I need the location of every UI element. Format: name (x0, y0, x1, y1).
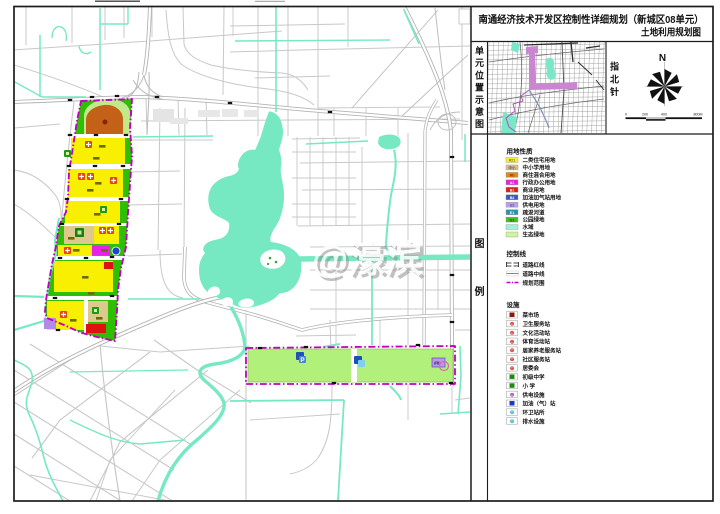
svg-text:设施: 设施 (507, 300, 521, 309)
svg-text:B1: B1 (510, 189, 515, 193)
svg-text:⊕: ⊕ (510, 366, 515, 372)
svg-text:400: 400 (661, 113, 667, 117)
svg-text:加油（气）站: 加油（气）站 (522, 400, 557, 408)
svg-text:商业用地: 商业用地 (523, 186, 546, 194)
svg-text:行政办公用地: 行政办公用地 (522, 178, 557, 186)
svg-text:生态绿地: 生态绿地 (523, 231, 546, 239)
svg-text:针: 针 (610, 86, 619, 97)
svg-text:A1: A1 (510, 181, 515, 185)
svg-text:图: 图 (475, 119, 484, 129)
svg-text:位: 位 (475, 69, 484, 80)
svg-text:单: 单 (475, 45, 484, 56)
svg-text:U1: U1 (510, 203, 515, 207)
svg-text:##: ## (434, 361, 440, 367)
svg-text:图: 图 (475, 238, 485, 250)
svg-text:指: 指 (610, 61, 619, 72)
svg-text:E1: E1 (510, 211, 514, 215)
svg-text:商住混合用地: 商住混合用地 (523, 171, 557, 179)
svg-text:⊕: ⊕ (510, 348, 515, 354)
svg-text:Rb: Rb (510, 174, 516, 178)
svg-text:道路红线: 道路红线 (523, 261, 546, 269)
svg-text:小 学: 小 学 (523, 382, 536, 390)
svg-text:例: 例 (475, 285, 485, 298)
svg-text:⊕: ⊕ (510, 322, 515, 328)
svg-text:⊕: ⊕ (510, 357, 515, 363)
svg-text:供电设施: 供电设施 (522, 391, 546, 399)
svg-text:⊕: ⊕ (510, 419, 515, 425)
svg-text:示: 示 (475, 95, 484, 105)
svg-text:菜市场: 菜市场 (522, 311, 540, 319)
svg-text:居委会: 居委会 (523, 364, 540, 372)
svg-text:R21: R21 (509, 159, 516, 163)
svg-text:卫生服务站: 卫生服务站 (523, 320, 551, 328)
svg-text:P: P (301, 358, 305, 364)
svg-text:排水设施: 排水设施 (523, 417, 546, 425)
svg-text:N: N (659, 53, 666, 64)
svg-text:初级中学: 初级中学 (523, 373, 546, 381)
svg-text:中小: 中小 (508, 165, 516, 170)
svg-text:⊕: ⊕ (510, 331, 515, 337)
svg-text:社区服务站: 社区服务站 (522, 355, 551, 363)
svg-text:⊕: ⊕ (510, 410, 515, 416)
svg-text:0: 0 (625, 113, 627, 117)
svg-text:中小学用地: 中小学用地 (523, 164, 551, 172)
svg-text:二类住宅用地: 二类住宅用地 (523, 156, 557, 164)
svg-text:@濠滨: @濠滨 (312, 238, 422, 280)
svg-text:加油加气站用地: 加油加气站用地 (522, 193, 562, 201)
svg-text:意: 意 (475, 106, 484, 117)
svg-text:规划范围: 规划范围 (523, 279, 546, 287)
svg-text:⊕: ⊕ (510, 339, 515, 345)
svg-text:南通经济技术开发区控制性详细规划（新城区08单元）: 南通经济技术开发区控制性详细规划（新城区08单元） (479, 13, 704, 26)
svg-text:供电用地: 供电用地 (522, 201, 546, 209)
svg-text:北: 北 (610, 73, 619, 84)
svg-text:疏浚河道: 疏浚河道 (523, 208, 546, 216)
svg-text:土地利用规划图: 土地利用规划图 (641, 27, 701, 39)
svg-text:200: 200 (642, 113, 648, 117)
svg-text:体育活动站: 体育活动站 (523, 338, 551, 346)
svg-text:800M: 800M (694, 113, 703, 117)
svg-text:居家养老服务站: 居家养老服务站 (523, 347, 562, 355)
svg-text:B4: B4 (510, 196, 515, 200)
svg-text:G1: G1 (510, 218, 515, 222)
svg-text:文化活动站: 文化活动站 (523, 329, 551, 337)
svg-text:控制线: 控制线 (507, 249, 527, 258)
svg-text:置: 置 (475, 83, 484, 93)
svg-text:水域: 水域 (523, 223, 535, 231)
svg-text:环卫站所: 环卫站所 (523, 408, 546, 416)
svg-text:⊕: ⊕ (510, 392, 515, 398)
svg-text:公园绿地: 公园绿地 (523, 216, 546, 224)
svg-text:用地性质: 用地性质 (506, 147, 534, 156)
svg-text:元: 元 (475, 58, 484, 68)
svg-text:道路中线: 道路中线 (523, 270, 546, 278)
